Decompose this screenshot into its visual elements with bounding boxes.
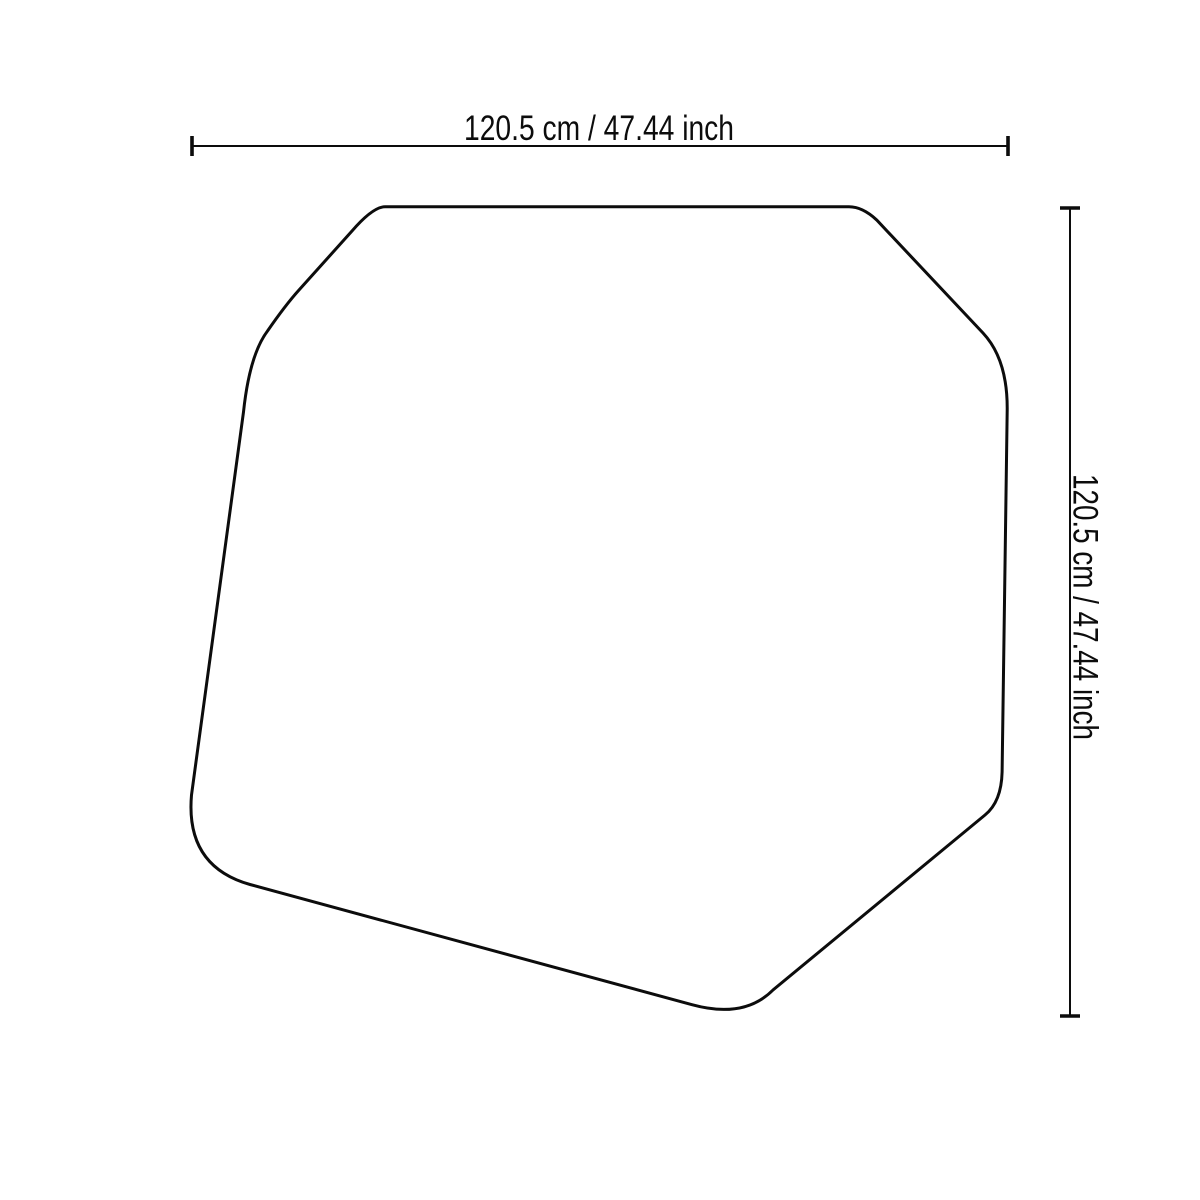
svg-text:120.5 cm / 47.44 inch: 120.5 cm / 47.44 inch bbox=[1066, 474, 1105, 740]
svg-text:120.5 cm / 47.44 inch: 120.5 cm / 47.44 inch bbox=[464, 109, 734, 148]
